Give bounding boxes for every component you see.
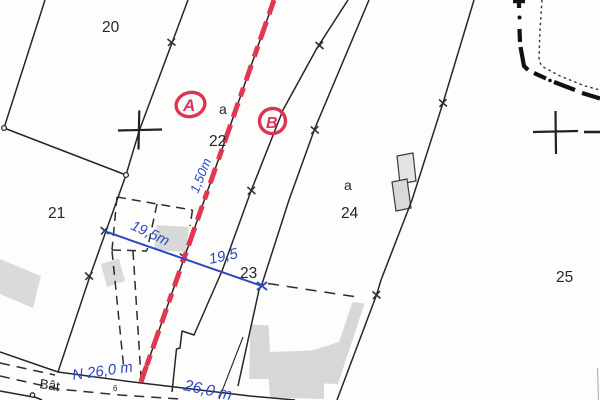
svg-text:Bât: Bât bbox=[39, 376, 62, 394]
svg-text:24: 24 bbox=[341, 205, 359, 222]
svg-text:a: a bbox=[219, 101, 227, 117]
svg-text:22: 22 bbox=[209, 133, 226, 150]
svg-text:A: A bbox=[182, 96, 195, 115]
svg-text:B: B bbox=[266, 115, 278, 132]
svg-text:19,5: 19,5 bbox=[207, 245, 240, 268]
svg-text:23: 23 bbox=[240, 265, 257, 282]
svg-text:a: a bbox=[344, 177, 352, 193]
svg-text:25: 25 bbox=[556, 269, 573, 286]
svg-text:6: 6 bbox=[113, 384, 118, 393]
svg-text:20: 20 bbox=[102, 19, 120, 36]
svg-text:19,5m: 19,5m bbox=[128, 218, 171, 250]
svg-text:21: 21 bbox=[48, 205, 65, 222]
svg-text:1,50m: 1,50m bbox=[187, 156, 215, 195]
